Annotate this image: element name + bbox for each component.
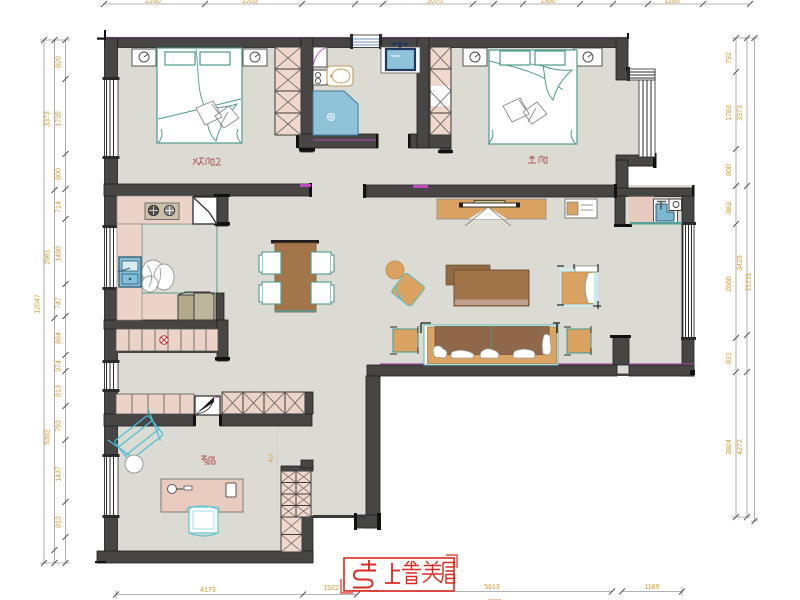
svg-text:813: 813 — [56, 385, 63, 397]
svg-text:3824: 3824 — [726, 439, 733, 455]
svg-text:894: 894 — [56, 332, 63, 344]
svg-text:5613: 5613 — [484, 584, 500, 591]
svg-text:3423: 3423 — [737, 255, 744, 271]
svg-text:820: 820 — [56, 56, 63, 68]
svg-text:2075: 2075 — [427, 0, 443, 5]
svg-text:1490: 1490 — [56, 246, 63, 262]
svg-text:714: 714 — [56, 201, 63, 213]
svg-text:2205: 2205 — [242, 0, 258, 5]
svg-text:831: 831 — [726, 352, 733, 364]
svg-text:5392: 5392 — [45, 429, 52, 445]
svg-text:2260: 2260 — [145, 0, 161, 5]
svg-text:1300: 1300 — [540, 0, 556, 5]
svg-text:747: 747 — [56, 297, 63, 309]
svg-text:1735: 1735 — [56, 111, 63, 127]
svg-text:4272: 4272 — [737, 439, 744, 455]
svg-text:4173: 4173 — [200, 587, 216, 594]
svg-text:792: 792 — [726, 52, 733, 64]
svg-text:1189: 1189 — [644, 584, 659, 591]
svg-text:417: 417 — [269, 453, 275, 462]
svg-text:11211: 11211 — [746, 273, 753, 292]
svg-text:1437: 1437 — [56, 466, 63, 482]
svg-text:800: 800 — [726, 164, 733, 176]
svg-text:1783: 1783 — [726, 105, 733, 121]
svg-text:12047: 12047 — [35, 294, 42, 314]
svg-text:2660: 2660 — [726, 276, 733, 292]
svg-text:374: 374 — [56, 360, 63, 372]
svg-text:793: 793 — [56, 420, 63, 432]
svg-text:3373: 3373 — [45, 111, 52, 127]
svg-text:2961: 2961 — [45, 249, 52, 265]
svg-text:1265: 1265 — [664, 0, 680, 5]
svg-text:883: 883 — [726, 202, 733, 214]
svg-text:3373: 3373 — [737, 105, 744, 121]
svg-text:813: 813 — [56, 516, 63, 528]
svg-text:1522: 1522 — [323, 585, 339, 592]
svg-text:800: 800 — [56, 168, 63, 180]
